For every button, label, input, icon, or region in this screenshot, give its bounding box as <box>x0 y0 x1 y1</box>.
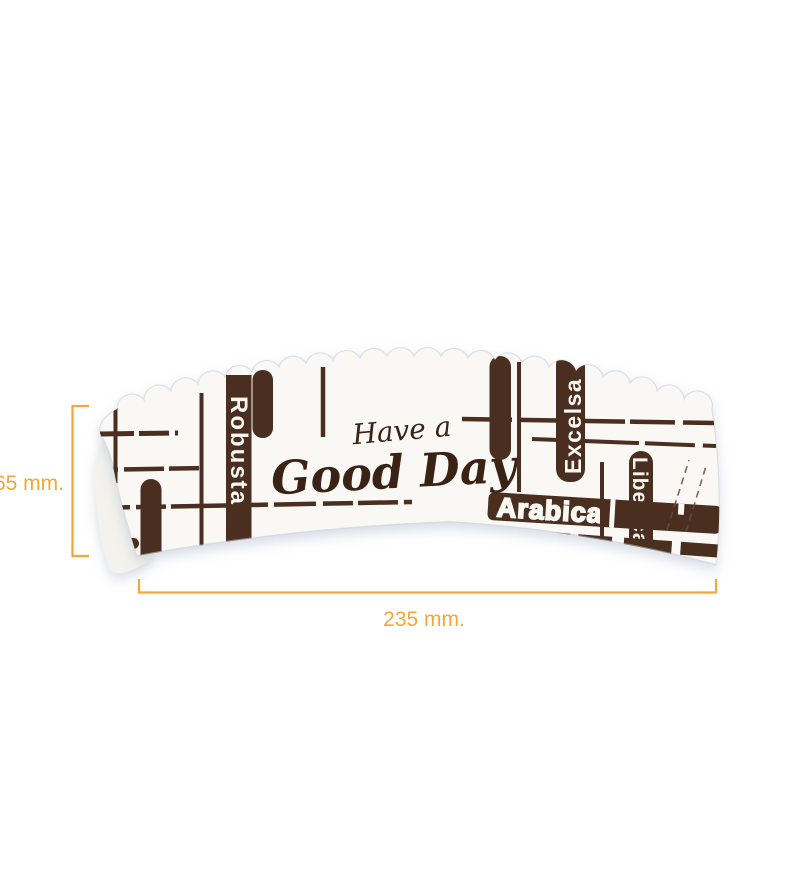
width-dimension-label: 235 mm. <box>383 608 465 631</box>
width-dimension-line <box>139 579 716 593</box>
coffee-sleeve-photo: Robusta Have a Good Day Excelsa Liberica <box>0 0 800 895</box>
plaid-capsule-bar <box>253 370 274 438</box>
plaid-capsule-bar <box>490 356 512 460</box>
height-dimension-line <box>73 406 90 556</box>
excelsa-label: Excelsa <box>560 378 586 474</box>
robusta-label: Robusta <box>225 396 252 506</box>
product-dimension-diagram: Robusta Have a Good Day Excelsa Liberica <box>0 0 800 895</box>
height-dimension-label: 65 mm. <box>0 472 64 495</box>
